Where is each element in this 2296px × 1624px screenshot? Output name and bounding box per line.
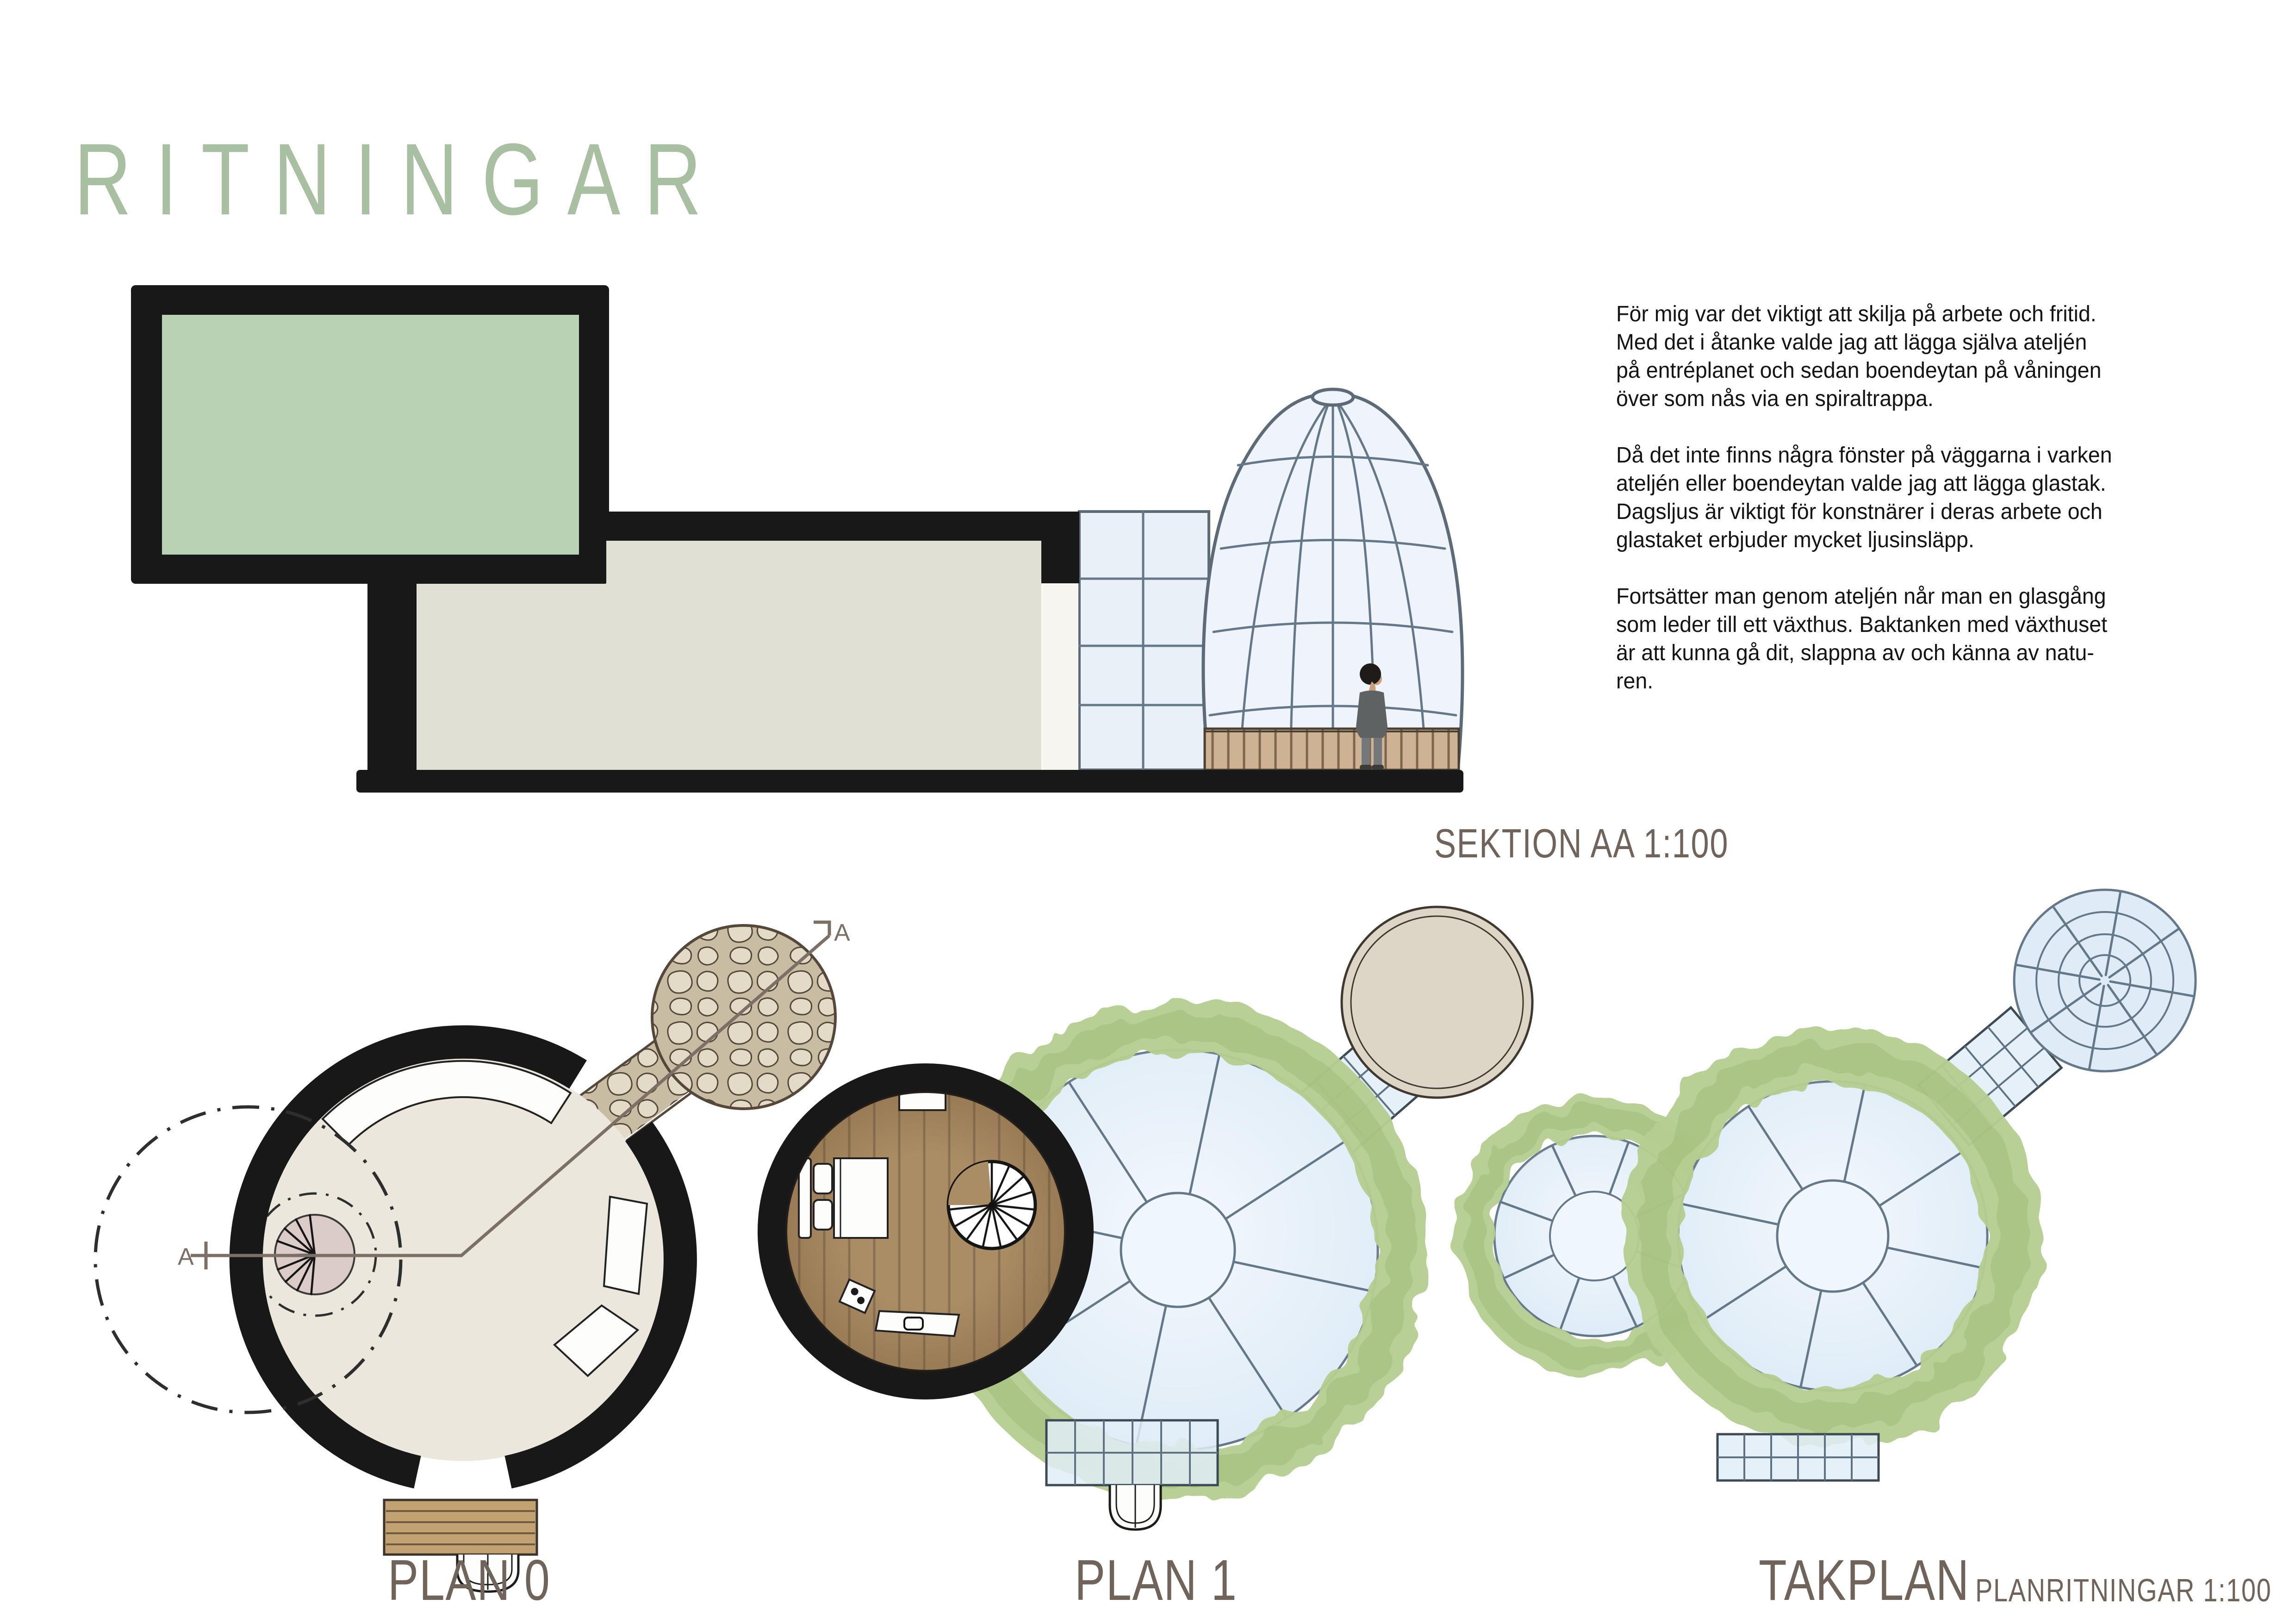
takplan-label: TAKPLAN [1759,1552,1970,1609]
greenhouse-plan1 [1342,907,1532,1098]
plan1-drawing [772,907,1532,1530]
page-title: RITNINGAR [74,128,725,230]
drawings-canvas: A A [0,0,2296,1624]
presentation-page: A A [0,0,2296,1624]
plan0-drawing: A A [95,919,850,1592]
description-paragraph-1: För mig var det viktigt att skilja på ar… [1616,300,2267,413]
wood-deck-section [1205,729,1459,770]
plans-scale-label: PLANRITNINGAR 1:100 [1975,1574,2271,1606]
bedroom-plan1 [772,1075,1079,1385]
ground-slab [356,770,1463,793]
section-drawing [131,285,1463,793]
entrance-steps [384,1500,537,1555]
spiral-stair-plan1 [948,1162,1035,1249]
greenhouse-dome-takplan [2014,890,2196,1071]
cut-marker-a-right: A [834,919,850,946]
description-paragraph-3: Fortsätter man genom ateljén når man en … [1616,582,2267,695]
bedroom-section [131,285,609,584]
entrance-canopy-takplan [1717,1434,1879,1480]
description-paragraph-2: Då det inte finns några fönster på vägga… [1616,441,2267,554]
entrance-canopy-plan1 [1046,1420,1218,1485]
entrance-arch-plan1 [1110,1485,1161,1530]
plan1-label: PLAN 1 [1075,1552,1237,1609]
glass-corridor-section [1079,512,1209,770]
desk-1 [604,1197,647,1294]
takplan-drawing [1455,890,2196,1480]
cut-marker-a-left: A [178,1243,194,1270]
greenhouse-dome-section [1203,389,1462,770]
section-label: SEKTION AA 1:100 [1434,823,1729,864]
dome-apex [1313,389,1353,405]
plan0-label: PLAN 0 [388,1552,550,1609]
description-text: För mig var det viktigt att skilja på ar… [1616,300,2267,724]
